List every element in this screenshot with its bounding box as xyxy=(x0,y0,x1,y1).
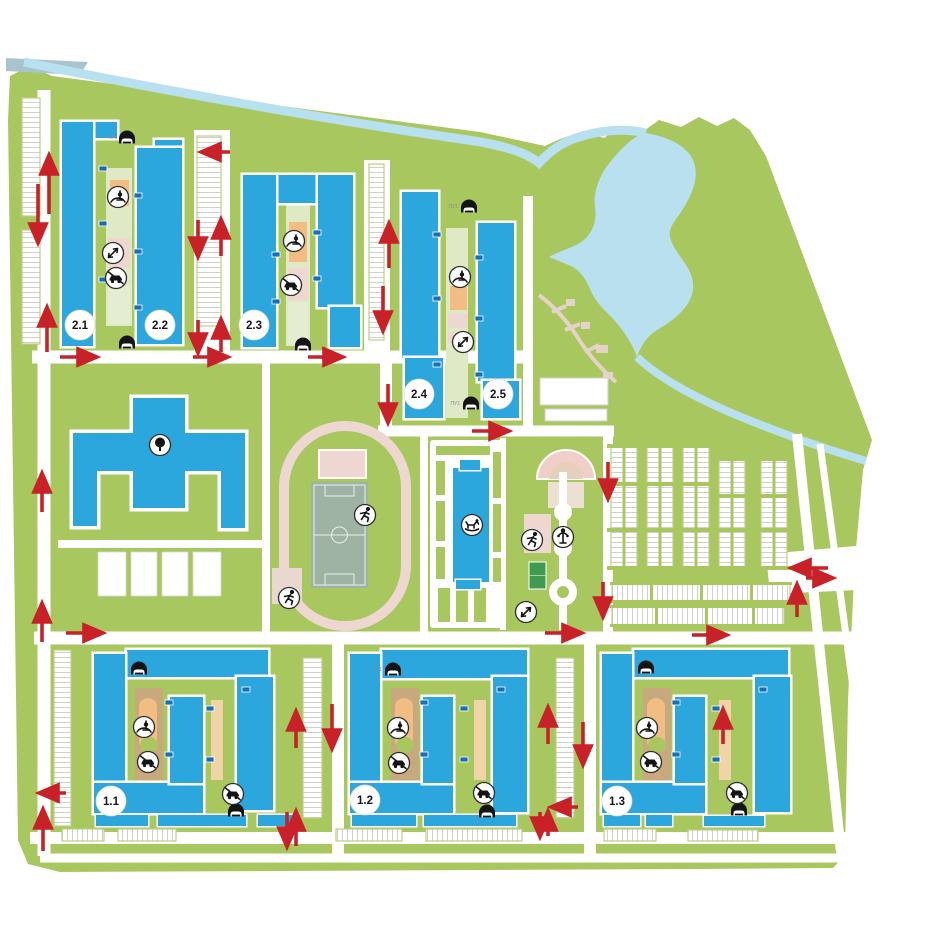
runner-icon[interactable] xyxy=(279,588,300,609)
playground-icon[interactable] xyxy=(450,267,471,288)
playground-icon[interactable] xyxy=(134,717,155,738)
building-label-2-2[interactable]: 2.2 xyxy=(145,310,175,340)
mini-pitch xyxy=(529,562,546,589)
label-text: 2.4 xyxy=(411,389,428,401)
parking-entry-tag: ПУ1 xyxy=(448,204,458,210)
no-cars-icon[interactable] xyxy=(389,753,410,774)
no-cars-icon[interactable] xyxy=(138,752,159,773)
tree-icon[interactable] xyxy=(150,435,171,456)
masterplan-page: 2.1 2.2 2.3 2.4 2.5 1.1 1.2 1.3 ПУ1 ПУ1 … xyxy=(0,0,935,935)
parking-lot-main xyxy=(607,444,792,627)
stadium-stands xyxy=(319,450,366,478)
parking-entry-tag: ПУ1 xyxy=(372,667,382,673)
workout-icon[interactable] xyxy=(453,332,474,353)
street-row-buildings[interactable] xyxy=(96,815,764,826)
label-text: 2.3 xyxy=(246,320,262,332)
label-text: 2.5 xyxy=(490,389,507,401)
no-cars-icon[interactable] xyxy=(281,275,302,296)
no-cars-icon[interactable] xyxy=(641,752,662,773)
building-label-2-1[interactable]: 2.1 xyxy=(65,310,95,340)
football-field xyxy=(311,482,368,588)
building-label-2-5[interactable]: 2.5 xyxy=(483,379,513,409)
reserved-pads xyxy=(540,378,608,421)
runner-icon[interactable] xyxy=(522,530,543,551)
no-cars-icon[interactable] xyxy=(106,268,127,289)
playground-icon[interactable] xyxy=(388,718,409,739)
label-text: 2.2 xyxy=(152,320,168,332)
playground-icon[interactable] xyxy=(108,187,129,208)
label-text: 2.1 xyxy=(72,320,89,332)
courtyard-2-4 xyxy=(446,228,468,418)
no-cars-icon[interactable] xyxy=(223,784,244,805)
building-label-1-1[interactable]: 1.1 xyxy=(96,786,126,816)
building-1.1[interactable] xyxy=(94,650,273,813)
rocking-horse-icon[interactable] xyxy=(462,515,483,536)
site-map: 2.1 2.2 2.3 2.4 2.5 1.1 1.2 1.3 ПУ1 ПУ1 … xyxy=(0,0,935,935)
runner-icon[interactable] xyxy=(355,505,376,526)
courtyard-2-3 xyxy=(286,200,310,346)
playground-icon[interactable] xyxy=(284,231,305,252)
no-cars-icon[interactable] xyxy=(474,783,495,804)
label-text: 1.2 xyxy=(357,795,373,807)
label-text: 1.3 xyxy=(609,796,625,808)
lamp-icon[interactable] xyxy=(553,527,574,548)
building-label-2-4[interactable]: 2.4 xyxy=(404,379,434,409)
building-label-1-3[interactable]: 1.3 xyxy=(602,786,632,816)
building-1.3[interactable] xyxy=(602,650,790,813)
parking-entry-tag: ПУ1 xyxy=(450,401,460,407)
label-text: 1.1 xyxy=(103,796,120,808)
playground-icon[interactable] xyxy=(637,718,658,739)
building-1.2[interactable] xyxy=(350,650,527,813)
building-label-1-2[interactable]: 1.2 xyxy=(350,785,380,815)
parking-entry-tag: ПУ1 xyxy=(107,135,117,141)
workout-icon[interactable] xyxy=(103,243,124,264)
building-label-2-3[interactable]: 2.3 xyxy=(239,310,269,340)
no-cars-icon[interactable] xyxy=(727,783,748,804)
workout-icon[interactable] xyxy=(516,602,537,623)
